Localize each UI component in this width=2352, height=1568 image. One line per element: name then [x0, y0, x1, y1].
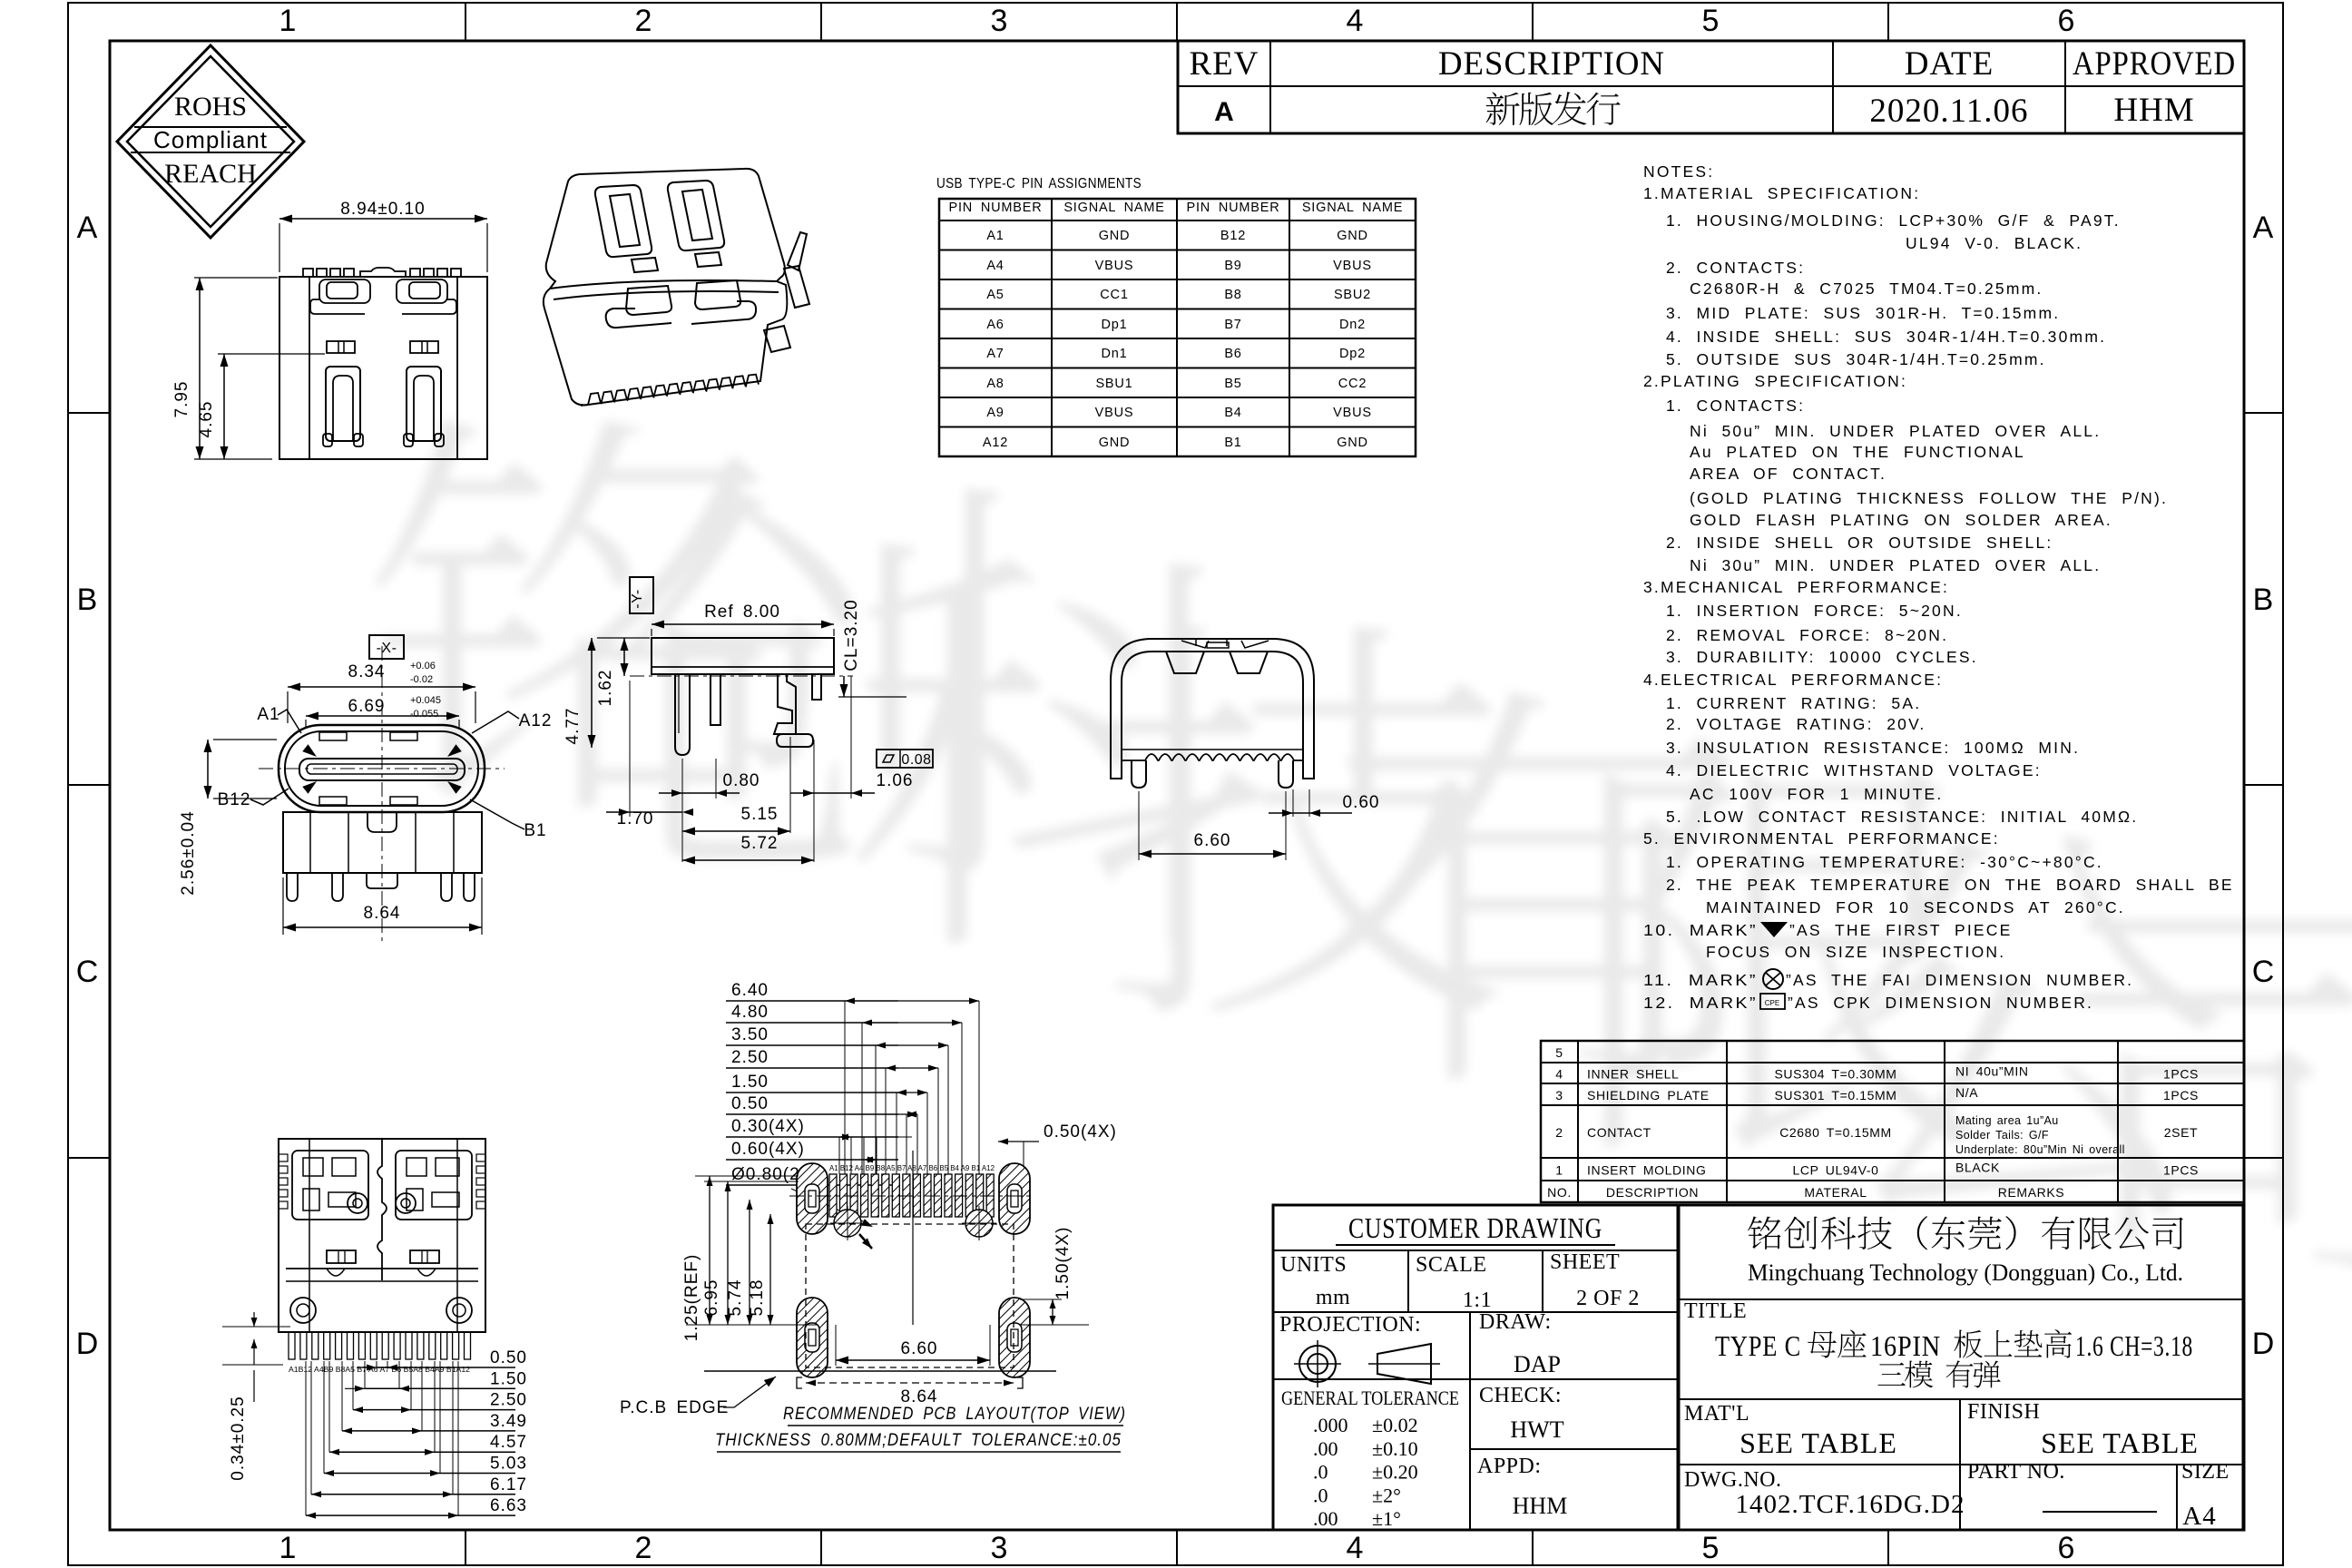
svg-text:Ni 50u” MIN. UNDER PLATED OVER: Ni 50u” MIN. UNDER PLATED OVER ALL.: [1690, 422, 2101, 440]
svg-text:”AS THE FAI DIMENSION NUMBER.: ”AS THE FAI DIMENSION NUMBER.: [1786, 971, 2133, 989]
svg-text:A: A: [1214, 97, 1234, 127]
svg-text:±0.10: ±0.10: [1372, 1437, 1418, 1460]
svg-text:FOCUS ON SIZE INSPECTION.: FOCUS ON SIZE INSPECTION.: [1706, 943, 2005, 961]
svg-text:1: 1: [279, 1531, 297, 1565]
svg-text:3. MID PLATE: SUS 301R-H. T=0.: 3. MID PLATE: SUS 301R-H. T=0.15mm.: [1666, 304, 2060, 322]
svg-text:4.77: 4.77: [563, 708, 583, 745]
svg-text:+0.045: +0.045: [410, 695, 441, 706]
svg-text:1PCS: 1PCS: [2163, 1088, 2199, 1102]
svg-text:1PCS: 1PCS: [2163, 1067, 2199, 1082]
svg-text:0.50: 0.50: [490, 1348, 527, 1367]
svg-text:N/A: N/A: [1955, 1085, 1978, 1100]
svg-text:1.50: 1.50: [490, 1369, 527, 1388]
svg-text:2020.11.06: 2020.11.06: [1869, 93, 2028, 130]
svg-text:D: D: [2252, 1327, 2275, 1361]
svg-text:GENERAL TOLERANCE: GENERAL TOLERANCE: [1281, 1387, 1459, 1409]
svg-text:DAP: DAP: [1514, 1351, 1561, 1377]
svg-text:-0.055: -0.055: [410, 709, 438, 720]
svg-text:TITLE: TITLE: [1684, 1299, 1747, 1323]
svg-text:VBUS: VBUS: [1333, 406, 1372, 420]
svg-text:CPE: CPE: [1765, 999, 1779, 1007]
svg-text:B12: B12: [218, 790, 251, 809]
svg-text:NO.: NO.: [1547, 1185, 1572, 1200]
svg-text:SBU2: SBU2: [1334, 288, 1371, 302]
svg-text:1: 1: [279, 4, 297, 38]
svg-text:SHEET: SHEET: [1550, 1250, 1620, 1274]
svg-text:A7: A7: [986, 347, 1004, 361]
svg-text:HHM: HHM: [1513, 1493, 1568, 1519]
svg-text:8.64: 8.64: [901, 1387, 938, 1406]
svg-text:6: 6: [2058, 1531, 2075, 1565]
svg-text:3: 3: [991, 4, 1008, 38]
svg-text:0.50: 0.50: [731, 1094, 769, 1113]
svg-text:PIN NUMBER: PIN NUMBER: [948, 201, 1042, 215]
svg-text:2.PLATING SPECIFICATION:: 2.PLATING SPECIFICATION:: [1643, 372, 1907, 390]
svg-text:2: 2: [635, 1531, 652, 1565]
svg-text:VBUS: VBUS: [1095, 406, 1134, 420]
svg-text:C: C: [76, 955, 99, 989]
svg-text:VBUS: VBUS: [1333, 259, 1372, 273]
svg-text:+0.06: +0.06: [410, 661, 436, 671]
svg-text:PROJECTION:: PROJECTION:: [1279, 1313, 1421, 1337]
svg-text:4.ELECTRICAL PERFORMANCE:: 4.ELECTRICAL PERFORMANCE:: [1643, 671, 1943, 689]
svg-text:B12: B12: [1220, 229, 1246, 243]
svg-text:6.40: 6.40: [731, 981, 769, 1000]
svg-text:0.50(4X): 0.50(4X): [1044, 1122, 1117, 1142]
svg-text:4: 4: [1347, 4, 1364, 38]
svg-text:6: 6: [2058, 4, 2075, 38]
svg-text:ROHS: ROHS: [174, 92, 247, 122]
svg-text:NOTES:: NOTES:: [1643, 162, 1714, 181]
svg-text:B5: B5: [1224, 377, 1241, 391]
svg-text:SUS304 T=0.30MM: SUS304 T=0.30MM: [1774, 1067, 1896, 1082]
svg-text:REACH: REACH: [164, 159, 257, 189]
svg-text:Underplate: 80u”Min Ni overall: Underplate: 80u”Min Ni overall: [1955, 1143, 2125, 1156]
svg-text:CC1: CC1: [1100, 288, 1128, 302]
svg-text:0.80: 0.80: [723, 771, 760, 790]
svg-text:3.50: 3.50: [731, 1025, 769, 1044]
svg-text:AC 100V FOR 1 MINUTE.: AC 100V FOR 1 MINUTE.: [1690, 785, 1943, 803]
svg-text:”AS THE FIRST PIECE: ”AS THE FIRST PIECE: [1789, 921, 2013, 939]
svg-text:2. REMOVAL FORCE: 8~20N.: 2. REMOVAL FORCE: 8~20N.: [1666, 626, 1948, 644]
svg-text:GOLD FLASH PLATING ON SOLDER A: GOLD FLASH PLATING ON SOLDER AREA.: [1690, 511, 2112, 529]
svg-text:11. MARK”: 11. MARK”: [1643, 971, 1758, 989]
svg-text:DESCRIPTION: DESCRIPTION: [1438, 45, 1665, 83]
svg-text:LCP UL94V-0: LCP UL94V-0: [1793, 1163, 1879, 1178]
svg-text:1. CONTACTS:: 1. CONTACTS:: [1666, 397, 1805, 415]
svg-text:2. CONTACTS:: 2. CONTACTS:: [1666, 259, 1805, 277]
svg-text:5. .LOW CONTACT RESISTANCE: IN: 5. .LOW CONTACT RESISTANCE: INITIAL 40MΩ…: [1666, 808, 2138, 826]
svg-text:1. CURRENT RATING: 5A.: 1. CURRENT RATING: 5A.: [1666, 694, 1921, 712]
svg-text:C2680R-H & C7025 TM04.T=0.25mm: C2680R-H & C7025 TM04.T=0.25mm.: [1690, 279, 2043, 298]
svg-text:mm: mm: [1316, 1286, 1350, 1309]
svg-text:2SET: 2SET: [2164, 1125, 2198, 1140]
svg-text:Mating area 1u”Au: Mating area 1u”Au: [1955, 1114, 2059, 1127]
svg-text:5.74: 5.74: [726, 1279, 745, 1317]
svg-text:Mingchuang Technology (Donggua: Mingchuang Technology (Dongguan) Co., Lt…: [1748, 1259, 2183, 1286]
svg-text:REMARKS: REMARKS: [1998, 1185, 2064, 1200]
svg-text:-0.02: -0.02: [410, 674, 433, 685]
svg-text:B6: B6: [1224, 347, 1241, 361]
svg-text:0.60(4X): 0.60(4X): [731, 1140, 805, 1159]
svg-text:A5: A5: [986, 288, 1004, 302]
svg-text:1:1: 1:1: [1463, 1289, 1492, 1312]
svg-text:5.18: 5.18: [748, 1279, 767, 1317]
svg-text:SUS301 T=0.15MM: SUS301 T=0.15MM: [1774, 1088, 1896, 1102]
svg-text:3.49: 3.49: [490, 1412, 527, 1431]
svg-text:SEE TABLE: SEE TABLE: [2041, 1426, 2199, 1459]
svg-text:SIGNAL NAME: SIGNAL NAME: [1302, 201, 1403, 215]
svg-text:0.08: 0.08: [901, 752, 931, 768]
svg-text:-X-: -X-: [377, 641, 397, 656]
svg-text:GND: GND: [1337, 229, 1368, 243]
svg-text:HWT: HWT: [1510, 1416, 1563, 1443]
svg-text:5.15: 5.15: [741, 805, 779, 824]
svg-text:B: B: [77, 583, 98, 617]
svg-text:C: C: [2252, 955, 2275, 989]
svg-text:.000: .000: [1313, 1414, 1348, 1436]
svg-text:1. INSERTION FORCE: 5~20N.: 1. INSERTION FORCE: 5~20N.: [1666, 602, 1963, 620]
svg-text:2. VOLTAGE RATING: 20V.: 2. VOLTAGE RATING: 20V.: [1666, 715, 1926, 733]
svg-text:SCALE: SCALE: [1416, 1253, 1487, 1277]
svg-text:6.60: 6.60: [1194, 831, 1231, 850]
svg-text:A1 B12 A4 B9 B8 A5 B7 A8 A7 B6: A1 B12 A4 B9 B8 A5 B7 A8 A7 B6 B5 B4 A9 …: [829, 1164, 995, 1172]
svg-text:B7: B7: [1224, 318, 1241, 332]
svg-text:.00: .00: [1313, 1507, 1338, 1530]
svg-text:B4: B4: [1224, 406, 1241, 420]
svg-text:5.72: 5.72: [741, 834, 779, 853]
svg-text:4.80: 4.80: [731, 1003, 769, 1022]
svg-text:SIZE: SIZE: [2181, 1460, 2229, 1484]
svg-text:1.62: 1.62: [596, 670, 615, 707]
svg-text:3. DURABILITY: 10000 CYCLES.: 3. DURABILITY: 10000 CYCLES.: [1666, 648, 1978, 666]
svg-text:CONTACT: CONTACT: [1587, 1125, 1651, 1140]
svg-text:0.30(4X): 0.30(4X): [731, 1117, 805, 1136]
svg-text:UL94 V-0. BLACK.: UL94 V-0. BLACK.: [1906, 234, 2082, 252]
svg-text:BLACK: BLACK: [1955, 1161, 2000, 1175]
svg-text:A8: A8: [986, 377, 1004, 391]
svg-text:±0.20: ±0.20: [1372, 1461, 1418, 1484]
svg-text:B1: B1: [524, 821, 546, 840]
svg-text:1. OPERATING TEMPERATURE: -30°: 1. OPERATING TEMPERATURE: -30°C~+80°C.: [1666, 853, 2103, 871]
svg-text:AREA OF CONTACT.: AREA OF CONTACT.: [1690, 465, 1886, 483]
svg-text:2.56±0.04: 2.56±0.04: [179, 810, 198, 895]
svg-text:2: 2: [1555, 1125, 1563, 1140]
svg-text:A6: A6: [986, 318, 1004, 332]
svg-text:4: 4: [1347, 1531, 1364, 1565]
svg-text:6.69: 6.69: [348, 697, 386, 716]
svg-text:1PCS: 1PCS: [2163, 1163, 2199, 1178]
svg-text:B1: B1: [1224, 436, 1241, 450]
svg-text:8.34: 8.34: [348, 662, 386, 681]
svg-text:6.60: 6.60: [901, 1339, 938, 1358]
svg-text:REV: REV: [1190, 45, 1259, 83]
svg-text:DRAW:: DRAW:: [1479, 1310, 1552, 1334]
svg-text:12. MARK”: 12. MARK”: [1643, 994, 1758, 1012]
svg-text:GND: GND: [1099, 229, 1131, 243]
svg-text:2 OF 2: 2 OF 2: [1576, 1287, 1640, 1310]
svg-text:6.63: 6.63: [490, 1496, 527, 1515]
svg-text:4. INSIDE SHELL: SUS 304R-1/4H: 4. INSIDE SHELL: SUS 304R-1/4H.T=0.30mm.: [1666, 328, 2106, 346]
svg-text:1.6 CH=3.18: 1.6 CH=3.18: [2075, 1329, 2193, 1362]
svg-text:HHM: HHM: [2113, 92, 2194, 129]
svg-text:C2680 T=0.15MM: C2680 T=0.15MM: [1779, 1125, 1892, 1140]
svg-text:±1°: ±1°: [1372, 1507, 1401, 1530]
svg-text:A4: A4: [2182, 1502, 2216, 1531]
svg-text:CHECK:: CHECK:: [1479, 1384, 1562, 1407]
svg-text:UNITS: UNITS: [1280, 1253, 1347, 1277]
svg-text:2. INSIDE SHELL OR OUTSIDE SHE: 2. INSIDE SHELL OR OUTSIDE SHELL:: [1666, 534, 2053, 552]
svg-text:GND: GND: [1099, 436, 1131, 450]
svg-text:B: B: [2253, 583, 2274, 617]
svg-text:1.06: 1.06: [877, 771, 914, 790]
svg-text:3: 3: [1555, 1088, 1563, 1102]
svg-text:.00: .00: [1313, 1437, 1338, 1460]
svg-text:3.MECHANICAL PERFORMANCE:: 3.MECHANICAL PERFORMANCE:: [1643, 578, 1949, 596]
svg-text:5: 5: [1702, 4, 1720, 38]
svg-text:1: 1: [1555, 1163, 1563, 1178]
svg-text:Dn1: Dn1: [1102, 347, 1128, 361]
svg-text:A12: A12: [519, 711, 553, 730]
svg-text:5: 5: [1702, 1531, 1720, 1565]
svg-text:APPROVED: APPROVED: [2073, 45, 2236, 83]
svg-text:2: 2: [635, 4, 652, 38]
svg-text:CC2: CC2: [1338, 377, 1367, 391]
svg-text:5.03: 5.03: [490, 1455, 527, 1474]
svg-text:1.50: 1.50: [731, 1073, 769, 1092]
svg-text:DESCRIPTION: DESCRIPTION: [1606, 1185, 1699, 1200]
svg-text:4.65: 4.65: [197, 401, 216, 438]
svg-text:SEE TABLE: SEE TABLE: [1739, 1426, 1897, 1459]
svg-text:A4: A4: [986, 259, 1004, 273]
svg-text:±2°: ±2°: [1372, 1484, 1401, 1506]
svg-text:SBU1: SBU1: [1095, 377, 1132, 391]
svg-text:7.95: 7.95: [172, 381, 191, 418]
svg-text:6.95: 6.95: [702, 1279, 721, 1317]
svg-text:4: 4: [1555, 1067, 1563, 1082]
svg-text:Dn2: Dn2: [1339, 318, 1366, 332]
svg-text:10. MARK”: 10. MARK”: [1643, 921, 1758, 939]
svg-text:0.34±0.25: 0.34±0.25: [229, 1396, 248, 1480]
svg-text:A: A: [77, 211, 98, 245]
svg-text:Dp1: Dp1: [1102, 318, 1128, 332]
svg-text:CUSTOMER DRAWING: CUSTOMER DRAWING: [1348, 1211, 1602, 1244]
svg-text:0.60: 0.60: [1343, 793, 1380, 812]
svg-text:16PIN: 16PIN: [1870, 1329, 1941, 1362]
svg-text:Compliant: Compliant: [153, 126, 268, 153]
svg-text:CL=3.20: CL=3.20: [842, 599, 861, 671]
svg-text:3: 3: [991, 1531, 1008, 1565]
svg-text:INSERT MOLDING: INSERT MOLDING: [1587, 1163, 1706, 1178]
svg-text:MATERAL: MATERAL: [1804, 1185, 1867, 1200]
svg-text:A12: A12: [983, 436, 1008, 450]
svg-text:1. HOUSING/MOLDING: LCP+30% G/: 1. HOUSING/MOLDING: LCP+30% G/F & PA9T.: [1666, 211, 2121, 230]
svg-text:B8: B8: [1224, 288, 1241, 302]
svg-text:Solder Tails: G/F: Solder Tails: G/F: [1955, 1129, 2049, 1142]
svg-text:1402.TCF.16DG.D2: 1402.TCF.16DG.D2: [1736, 1490, 1965, 1519]
svg-text:P.C.B EDGE: P.C.B EDGE: [620, 1398, 729, 1417]
svg-text:Au PLATED ON THE FUNCTIONAL: Au PLATED ON THE FUNCTIONAL: [1690, 443, 2025, 461]
svg-text:A1: A1: [257, 705, 279, 724]
svg-text:2. THE PEAK TEMPERATURE ON THE: 2. THE PEAK TEMPERATURE ON THE BOARD SHA…: [1666, 876, 2234, 894]
svg-text:TYPE C: TYPE C: [1715, 1329, 1801, 1362]
svg-text:USB TYPE-C PIN ASSIGNMENTS: USB TYPE-C PIN ASSIGNMENTS: [936, 176, 1142, 191]
svg-text:PART NO.: PART NO.: [1967, 1460, 2065, 1484]
svg-text:1.50(4X): 1.50(4X): [1053, 1227, 1073, 1300]
svg-text:Ref 8.00: Ref 8.00: [704, 603, 780, 622]
svg-text:APPD:: APPD:: [1477, 1455, 1542, 1478]
svg-text:3. INSULATION RESISTANCE: 100M: 3. INSULATION RESISTANCE: 100MΩ MIN.: [1666, 739, 2080, 757]
svg-text:”AS CPK DIMENSION NUMBER.: ”AS CPK DIMENSION NUMBER.: [1788, 994, 2093, 1012]
svg-text:2.50: 2.50: [490, 1391, 527, 1410]
svg-text:DWG.NO.: DWG.NO.: [1684, 1468, 1781, 1492]
svg-text:SHIELDING PLATE: SHIELDING PLATE: [1587, 1088, 1710, 1102]
svg-text:-Y-: -Y-: [630, 589, 645, 608]
svg-text:Ni 30u” MIN. UNDER PLATED OVER: Ni 30u” MIN. UNDER PLATED OVER ALL.: [1690, 556, 2101, 574]
svg-text:FINISH: FINISH: [1967, 1400, 2040, 1424]
svg-text:GND: GND: [1337, 436, 1368, 450]
svg-text:4. DIELECTRIC WITHSTAND VOLTAG: 4. DIELECTRIC WITHSTAND VOLTAGE:: [1666, 761, 2042, 779]
svg-text:.0: .0: [1313, 1484, 1328, 1506]
svg-text:8.94±0.10: 8.94±0.10: [340, 200, 425, 219]
svg-text:5: 5: [1555, 1045, 1563, 1060]
svg-text:MAINTAINED FOR 10 SECONDS AT 2: MAINTAINED FOR 10 SECONDS AT 260°C.: [1706, 898, 2125, 916]
svg-text:8.64: 8.64: [364, 904, 401, 923]
svg-text:.0: .0: [1313, 1461, 1328, 1484]
svg-text:Dp2: Dp2: [1339, 347, 1366, 361]
svg-text:5. OUTSIDE SUS 304R-1/4H.T=0.2: 5. OUTSIDE SUS 304R-1/4H.T=0.25mm.: [1666, 350, 2046, 368]
svg-text:THICKNESS 0.80MM;DEFAULT TOLER: THICKNESS 0.80MM;DEFAULT TOLERANCE:±0.05: [715, 1431, 1122, 1450]
svg-text:RECOMMENDED PCB LAYOUT(TOP VIE: RECOMMENDED PCB LAYOUT(TOP VIEW): [783, 1405, 1126, 1424]
svg-text:D: D: [76, 1327, 99, 1361]
svg-text:(GOLD PLATING THICKNESS FOLLOW: (GOLD PLATING THICKNESS FOLLOW THE P/N).: [1690, 489, 2168, 507]
svg-text:1.MATERIAL SPECIFICATION:: 1.MATERIAL SPECIFICATION:: [1643, 184, 1920, 202]
svg-text:2.50: 2.50: [731, 1048, 769, 1067]
svg-text:VBUS: VBUS: [1095, 259, 1134, 273]
svg-text:6.17: 6.17: [490, 1475, 527, 1494]
svg-text:1.25(REF): 1.25(REF): [682, 1254, 701, 1342]
svg-text:A: A: [2253, 211, 2274, 245]
svg-text:A1: A1: [986, 229, 1004, 243]
svg-text:4.57: 4.57: [490, 1433, 527, 1452]
svg-text:A9: A9: [986, 406, 1004, 420]
svg-text:DATE: DATE: [1905, 45, 1994, 83]
svg-text:B9: B9: [1224, 259, 1241, 273]
svg-text:±0.02: ±0.02: [1372, 1414, 1418, 1436]
svg-text:INNER SHELL: INNER SHELL: [1587, 1067, 1679, 1082]
svg-text:PIN NUMBER: PIN NUMBER: [1186, 201, 1279, 215]
svg-text:SIGNAL NAME: SIGNAL NAME: [1063, 201, 1164, 215]
svg-text:5. ENVIRONMENTAL PERFORMANCE:: 5. ENVIRONMENTAL PERFORMANCE:: [1643, 829, 2000, 848]
svg-text:MAT'L: MAT'L: [1684, 1402, 1749, 1426]
svg-text:NI 40u”MIN: NI 40u”MIN: [1955, 1064, 2029, 1079]
